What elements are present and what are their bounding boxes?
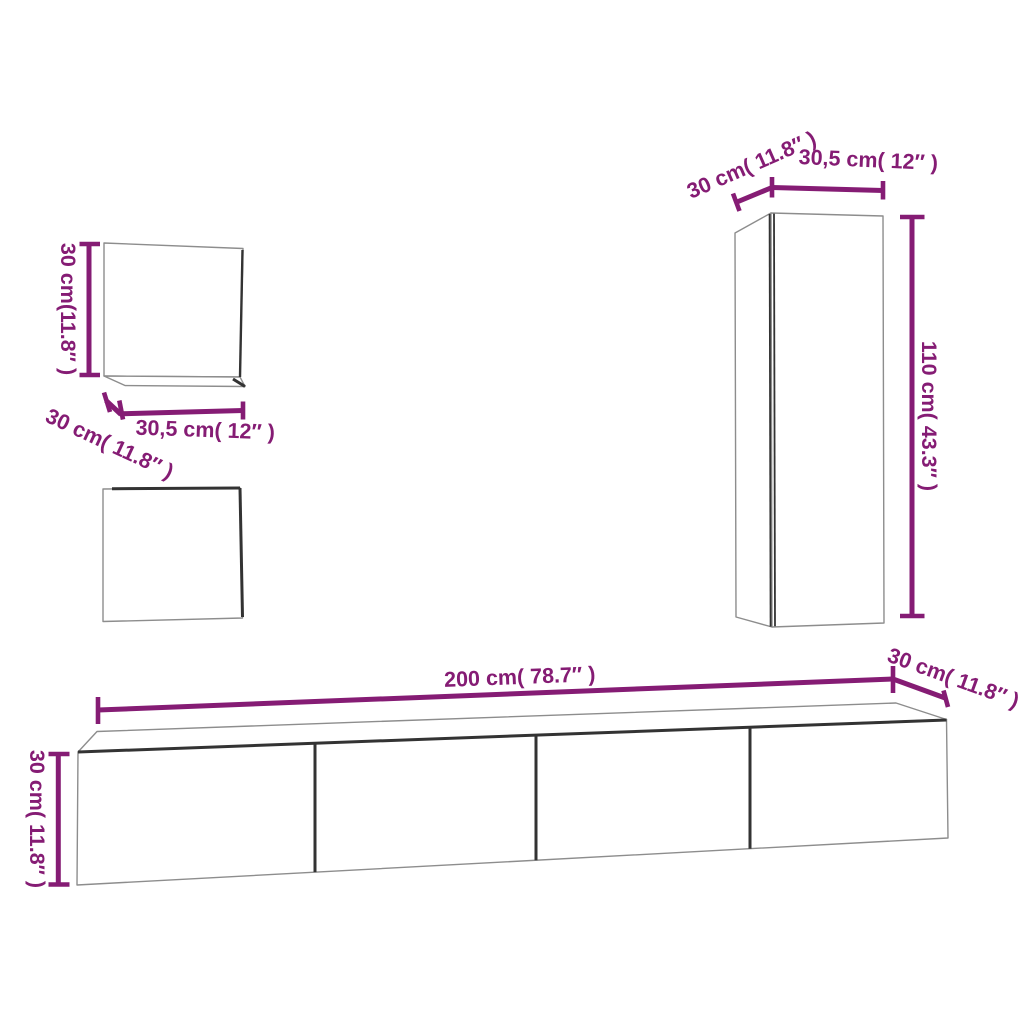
cabinet-door-edge [774, 214, 775, 627]
cabinet-bottom-face [104, 376, 245, 387]
dim-small-cabinet-height: 30 cm(11.8″ ) [56, 243, 100, 375]
dim-long-cabinet-depth: 30 cm( 11.8″ ) [884, 643, 1022, 713]
dimension-label: 200 cm( 78.7″ ) [444, 662, 596, 692]
dimension-tick [119, 401, 123, 420]
cabinet-side-face [735, 213, 772, 627]
dim-tall-cabinet-height: 110 cm( 43.3″ ) [900, 217, 941, 616]
dimension-label: 30 cm( 11.8″ ) [25, 750, 49, 888]
dimension-tick [944, 691, 949, 708]
small-wall-cabinet-top [104, 243, 245, 387]
diagram-canvas: 30 cm(11.8″ ) 30 cm( 11.8″ ) 30,5 cm( 12… [0, 0, 1024, 1024]
cabinet-front-face [103, 488, 243, 622]
cabinet-front-face [771, 213, 884, 627]
cabinet-top-edge [112, 488, 240, 489]
long-tv-cabinet [77, 703, 948, 885]
dimension-tick [104, 393, 110, 413]
dimension-line [121, 411, 243, 414]
dim-small-cabinet-width: 30,5 cm( 12″ ) [121, 402, 275, 445]
dimension-tick [733, 194, 740, 212]
dim-long-cabinet-height: 30 cm( 11.8″ ) [25, 750, 70, 888]
dimension-diagram: 30 cm(11.8″ ) 30 cm( 11.8″ ) 30,5 cm( 12… [0, 0, 1024, 1024]
small-wall-cabinet-bottom [103, 488, 243, 622]
dimension-label: 30 cm( 11.8″ ) [884, 643, 1022, 713]
dimension-label: 30,5 cm( 12″ ) [798, 145, 938, 175]
cabinet-door-edge [770, 214, 771, 627]
dimension-line [772, 188, 883, 191]
cabinet-front-face [104, 243, 243, 377]
dimension-label: 30,5 cm( 12″ ) [135, 416, 275, 445]
tall-wall-cabinet [735, 213, 884, 627]
dimension-label: 30 cm(11.8″ ) [56, 243, 80, 375]
dimension-line [737, 188, 772, 203]
dimension-label: 110 cm( 43.3″ ) [917, 341, 941, 491]
